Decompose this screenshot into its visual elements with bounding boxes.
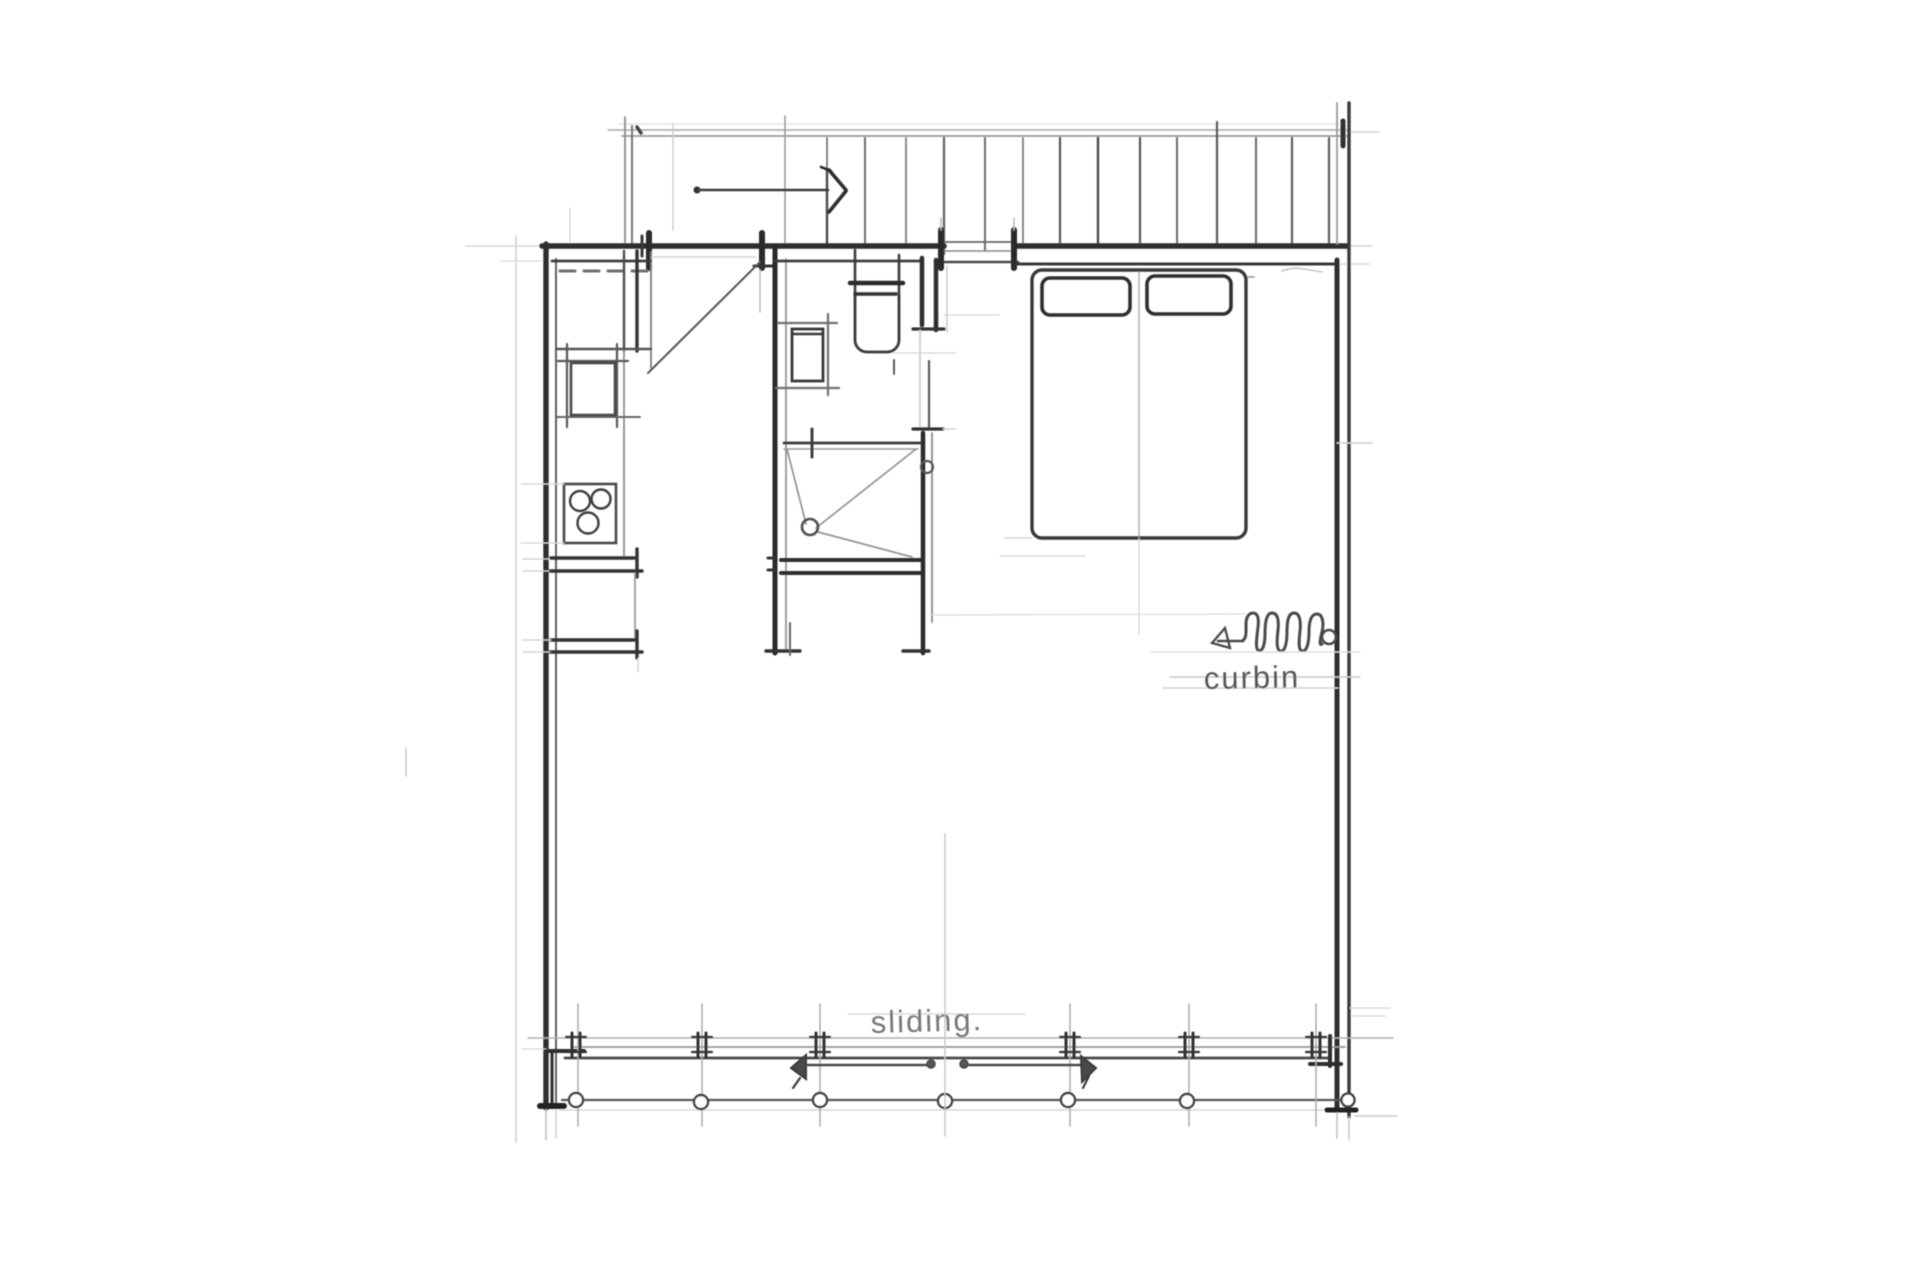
svg-text:curbin: curbin	[1204, 659, 1301, 696]
svg-text:sliding.: sliding.	[870, 1002, 983, 1040]
